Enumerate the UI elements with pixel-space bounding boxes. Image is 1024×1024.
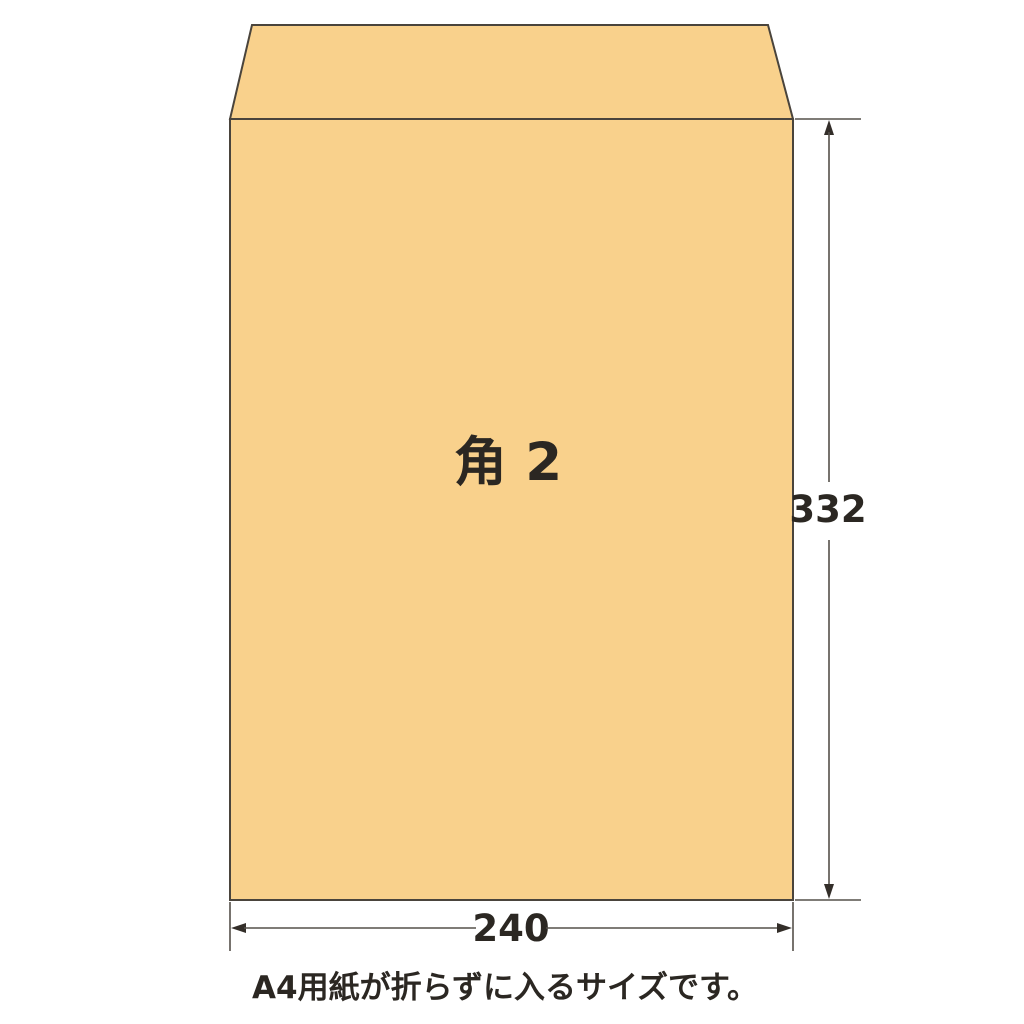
width-dimension: 240 — [231, 907, 792, 950]
arrow-right-icon — [777, 923, 792, 933]
envelope-size-diagram: 332 240 角 2 A4用紙が折らずに入るサイズです。 — [0, 0, 1024, 1024]
envelope-flap — [230, 25, 793, 119]
arrow-down-icon — [824, 884, 834, 899]
diagram-canvas: 332 240 角 2 A4用紙が折らずに入るサイズです。 — [0, 0, 1024, 1024]
envelope-size-label: 角 2 — [454, 432, 562, 493]
height-dimension: 332 — [789, 120, 866, 899]
width-value: 240 — [472, 907, 549, 950]
height-value: 332 — [789, 488, 866, 531]
envelope-body — [230, 119, 793, 900]
arrow-left-icon — [231, 923, 246, 933]
caption-text: A4用紙が折らずに入るサイズです。 — [252, 970, 758, 1006]
